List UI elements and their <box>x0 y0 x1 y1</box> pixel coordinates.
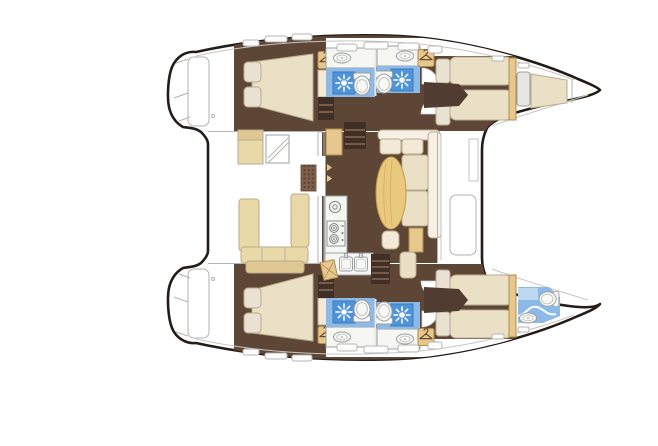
port-hull-stairs <box>344 122 366 149</box>
port-fwd-cabin <box>424 57 512 125</box>
salon-cabinet <box>326 129 342 155</box>
cockpit-aft-bench-back <box>238 130 263 140</box>
table-stool <box>382 231 399 249</box>
starboard-aft-pillow-2 <box>244 288 261 308</box>
port-bow-seat <box>517 72 530 106</box>
hatch-icon <box>492 334 504 339</box>
hatch-icon <box>265 353 287 359</box>
port-aft-pillow-2 <box>244 87 261 107</box>
hatch-icon <box>398 345 419 352</box>
hatch-icon <box>292 34 312 40</box>
hatch-icon <box>398 43 419 50</box>
hatch-icon <box>428 46 442 53</box>
hatch-icon <box>364 346 388 353</box>
port-fwd-pillow-1 <box>436 59 450 83</box>
hatch-icon <box>292 355 312 361</box>
floor-plan-canvas <box>0 0 658 446</box>
hatch-icon <box>337 344 357 351</box>
hatch-icon <box>518 63 529 68</box>
starboard-aft-head <box>326 298 375 347</box>
salon-door-opening <box>317 156 326 196</box>
port-aft-entry-steps <box>318 97 334 120</box>
cockpit-settee-aft-back <box>246 261 304 273</box>
hatch-icon <box>265 36 287 42</box>
hatch-icon <box>243 349 259 355</box>
settee-cushion-top-1 <box>380 139 401 154</box>
hatch-icon <box>364 42 388 49</box>
cockpit-grating <box>301 165 317 191</box>
hatch-icon <box>518 327 529 332</box>
hatch-icon <box>492 56 504 61</box>
boat-floor-plan <box>0 0 658 446</box>
port-bow-bulkhead <box>509 58 516 120</box>
starboard-fwd-cabin <box>424 270 512 338</box>
cockpit-settee-left <box>239 199 259 251</box>
starboard-fwd-pillow-1 <box>436 312 450 336</box>
port-aft-pillow-1 <box>244 62 261 82</box>
settee-back-right <box>428 132 441 238</box>
port-bow-berth <box>531 74 567 108</box>
cockpit-settee-right <box>291 194 309 247</box>
starboard-fwd-head <box>376 302 421 349</box>
hatch-icon <box>243 40 259 46</box>
starboard-bow-bulkhead <box>509 275 516 337</box>
starboard-bow-head-panel <box>518 288 538 300</box>
starboard-aft-pillow-1 <box>244 313 261 333</box>
settee-end-cushion <box>400 252 416 278</box>
galley-round-sink <box>329 201 340 212</box>
hatch-icon <box>337 44 357 51</box>
hatch-icon <box>428 342 442 349</box>
port-fwd-head <box>376 46 421 93</box>
settee-cushion-top-2 <box>402 139 423 154</box>
port-aft-head <box>326 48 375 97</box>
settee-step <box>409 228 423 252</box>
